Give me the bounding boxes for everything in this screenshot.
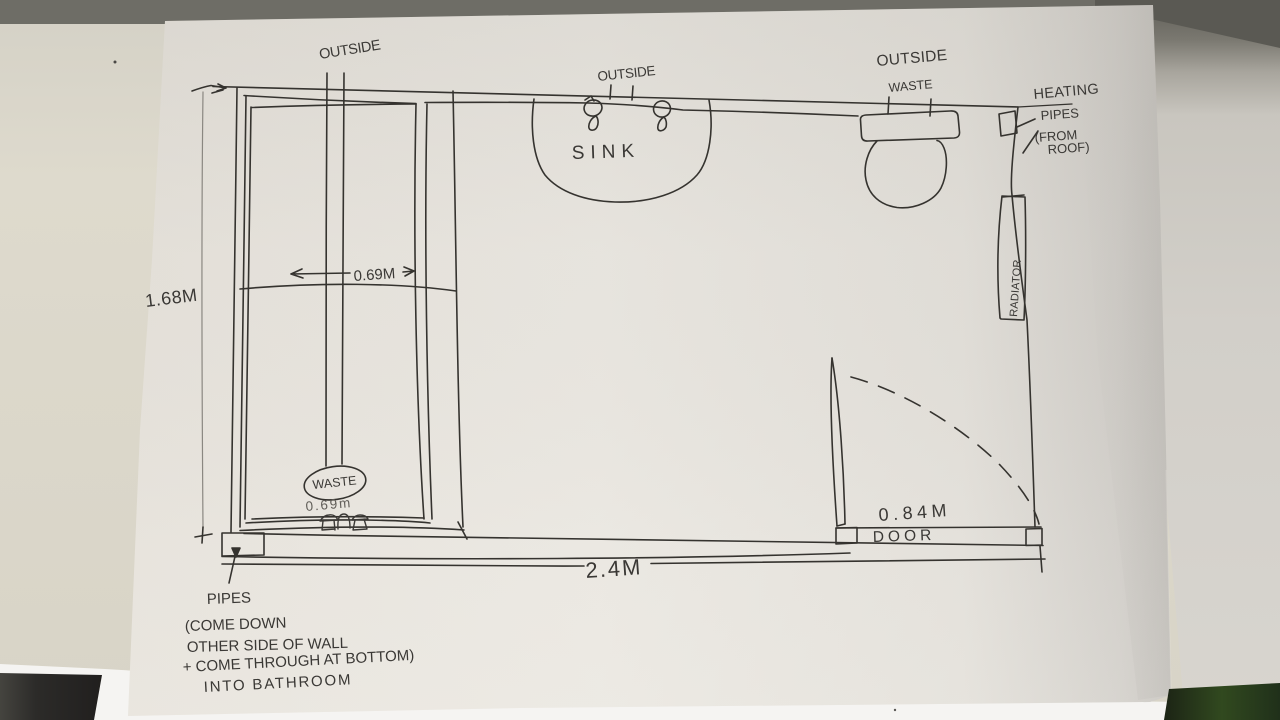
- svg-text:(COME DOWN: (COME DOWN: [185, 614, 287, 635]
- svg-text:ROOF): ROOF): [1047, 139, 1090, 157]
- svg-text:DOOR: DOOR: [873, 527, 936, 546]
- svg-text:PIPES: PIPES: [1040, 105, 1080, 123]
- svg-text:PIPES: PIPES: [207, 589, 252, 608]
- svg-text:2.4M: 2.4M: [585, 554, 644, 583]
- svg-text:SINK: SINK: [571, 141, 640, 164]
- svg-text:0.69M: 0.69M: [353, 265, 396, 285]
